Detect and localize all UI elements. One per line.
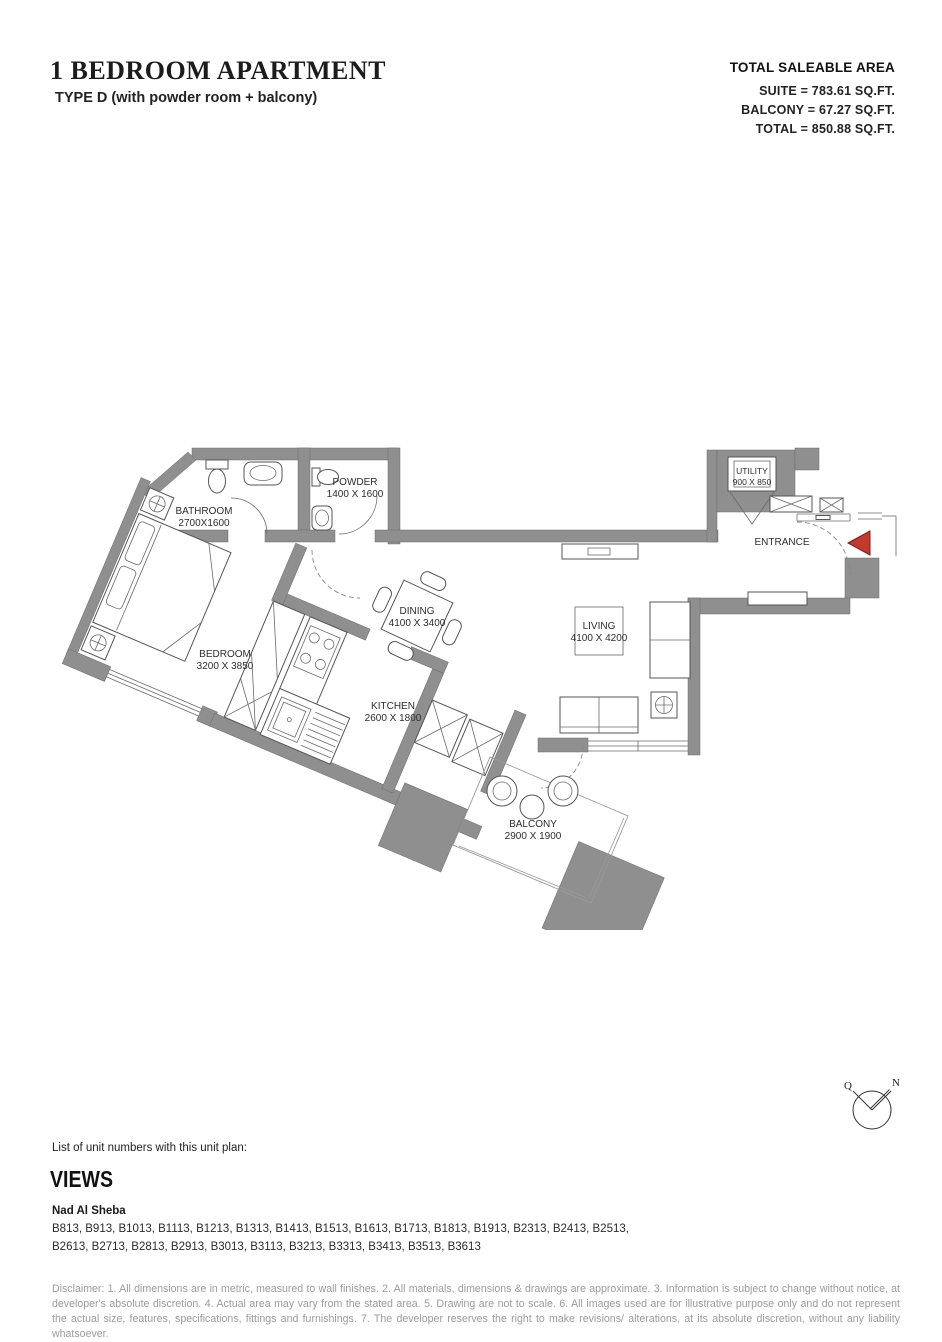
dining-label: DINING	[400, 606, 435, 617]
floorplan-page: { "header": { "title": "1 BEDROOM APARTM…	[0, 0, 942, 1336]
views-heading: VIEWS	[50, 1166, 113, 1193]
bedroom-window	[107, 670, 202, 716]
total-area: TOTAL = 850.88 SQ.FT.	[730, 120, 895, 139]
unit-numbers-list: B813, B913, B1013, B1113, B1213, B1313, …	[52, 1221, 667, 1257]
unit-list-caption: List of unit numbers with this unit plan…	[52, 1142, 247, 1154]
entrance-door-arc	[797, 522, 850, 575]
plan-type-subtitle: TYPE D (with powder room + balcony)	[55, 90, 317, 106]
saleable-area-title: TOTAL SALEABLE AREA	[730, 60, 895, 75]
living-dims: 4100 X 4200	[571, 633, 628, 644]
balcony-label: BALCONY	[509, 819, 557, 830]
entrance-arrow-icon	[848, 531, 870, 555]
north-compass-icon: Q N	[836, 1070, 912, 1142]
powder-dims: 1400 X 1600	[327, 489, 384, 500]
saleable-area-panel: TOTAL SALEABLE AREA SUITE = 783.61 SQ.FT…	[730, 60, 895, 138]
disclaimer-text: Disclaimer: 1. All dimensions are in met…	[52, 1282, 900, 1342]
entrance-window	[797, 513, 896, 556]
compass-west-label: Q	[844, 1080, 852, 1092]
balcony-dims: 2900 X 1900	[505, 831, 562, 842]
bedroom-label: BEDROOM	[199, 649, 251, 660]
district-name: Nad Al Sheba	[52, 1205, 126, 1217]
page-title: 1 BEDROOM APARTMENT	[50, 56, 386, 86]
bathroom-label: BATHROOM	[175, 506, 232, 517]
entrance-label: ENTRANCE	[754, 537, 809, 548]
entrance-console	[748, 592, 807, 605]
bedroom-dims: 3200 X 3850	[197, 661, 254, 672]
compass-north-label: N	[892, 1077, 900, 1089]
living-window	[588, 741, 688, 751]
bedroom-door-arc	[312, 550, 360, 598]
suite-area: SUITE = 783.61 SQ.FT.	[730, 82, 895, 101]
bathroom-dims: 2700X1600	[178, 518, 230, 529]
utility-label: UTILITY	[736, 466, 768, 476]
living-label: LIVING	[583, 621, 616, 632]
balcony-area: BALCONY = 67.27 SQ.FT.	[730, 101, 895, 120]
kitchen-dims: 2600 X 1800	[365, 713, 422, 724]
dining-dims: 4100 X 3400	[389, 618, 446, 629]
powder-label: POWDER	[333, 477, 378, 488]
floor-plan-drawing: BATHROOM 2700X1600 POWDER 1400 X 1600 UT…	[60, 430, 900, 930]
utility-dims: 900 X 850	[733, 477, 772, 487]
balcony-table	[520, 795, 544, 819]
kitchen-label: KITCHEN	[371, 701, 415, 712]
